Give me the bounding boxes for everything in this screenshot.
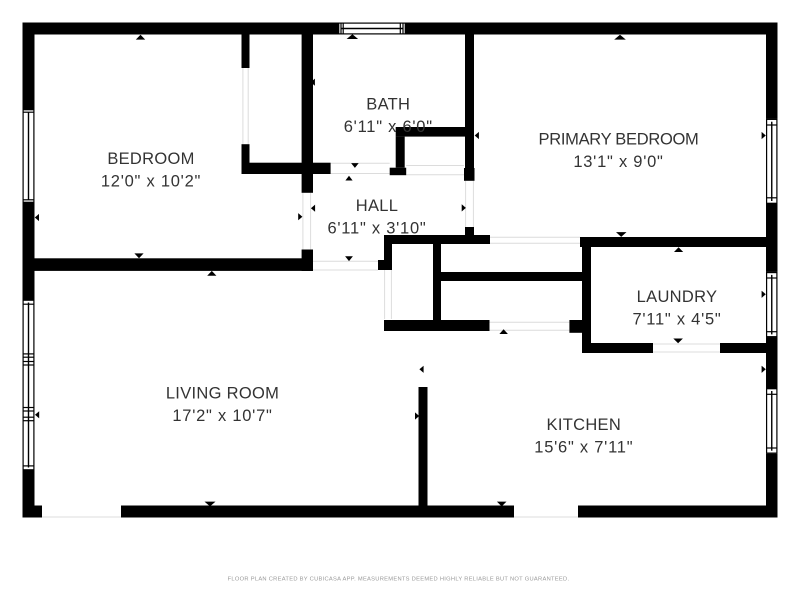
svg-text:15'6" x 7'11": 15'6" x 7'11" xyxy=(534,438,633,456)
svg-text:7'11" x 4'5": 7'11" x 4'5" xyxy=(632,310,721,328)
svg-text:PRIMARY BEDROOM: PRIMARY BEDROOM xyxy=(539,130,699,148)
svg-text:LAUNDRY: LAUNDRY xyxy=(637,288,718,306)
svg-text:HALL: HALL xyxy=(356,197,398,215)
svg-text:LIVING ROOM: LIVING ROOM xyxy=(166,384,279,402)
svg-text:17'2" x 10'7": 17'2" x 10'7" xyxy=(172,407,272,425)
svg-text:BEDROOM: BEDROOM xyxy=(107,150,194,168)
svg-text:6'11" x 3'10": 6'11" x 3'10" xyxy=(327,220,426,238)
svg-text:6'11" x 6'0": 6'11" x 6'0" xyxy=(344,118,433,136)
svg-text:KITCHEN: KITCHEN xyxy=(547,416,622,434)
svg-text:13'1" x 9'0": 13'1" x 9'0" xyxy=(573,153,663,171)
svg-text:12'0" x 10'2": 12'0" x 10'2" xyxy=(101,172,201,190)
svg-text:FLOOR PLAN CREATED BY CUBICASA: FLOOR PLAN CREATED BY CUBICASA APP. MEAS… xyxy=(228,577,570,583)
svg-text:BATH: BATH xyxy=(366,96,410,114)
